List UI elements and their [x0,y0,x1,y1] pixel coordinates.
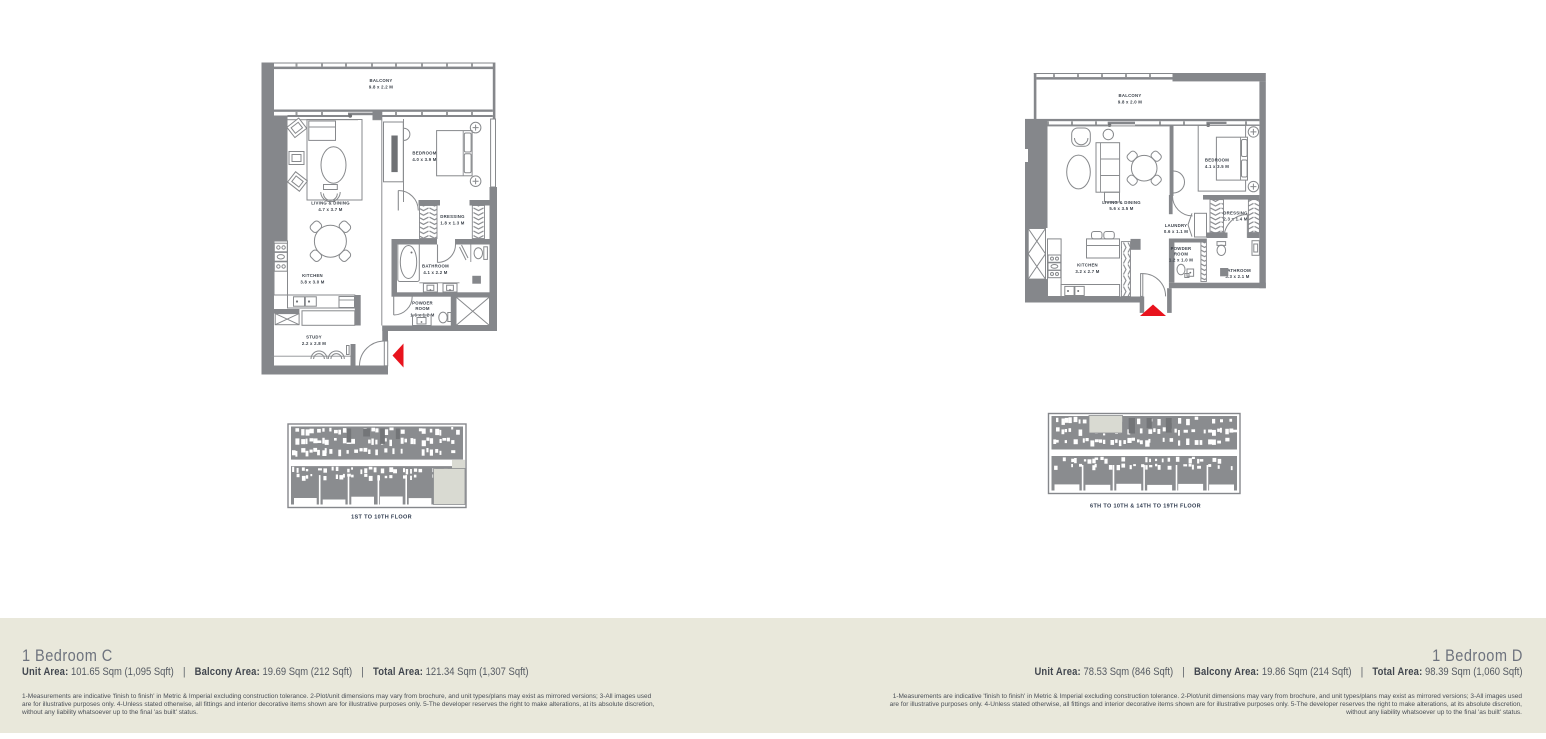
svg-text:3.3 x 2.1 M: 3.3 x 2.1 M [1225,274,1249,279]
svg-text:KITCHEN: KITCHEN [302,273,323,278]
svg-text:BALCONY: BALCONY [370,78,393,83]
svg-text:BATHROOM: BATHROOM [422,264,449,269]
svg-text:POWDER: POWDER [412,301,433,306]
svg-text:0.6 x 1.1 M: 0.6 x 1.1 M [1164,229,1188,234]
svg-text:2.2 x 2.8 M: 2.2 x 2.8 M [302,341,326,346]
svg-text:4.1 x 3.5 M: 4.1 x 3.5 M [1205,164,1229,169]
svg-text:4.1 x 2.2 M: 4.1 x 2.2 M [423,270,447,275]
svg-text:BEDROOM: BEDROOM [1205,158,1229,163]
svg-text:POWDER: POWDER [1171,246,1192,251]
svg-text:DRESSING: DRESSING [440,214,465,219]
svg-text:9.8 x 2.2 M: 9.8 x 2.2 M [369,85,393,90]
svg-text:ROOM: ROOM [415,306,430,311]
svg-text:9.8 x 2.0 M: 9.8 x 2.0 M [1118,100,1142,105]
svg-text:BALCONY: BALCONY [1119,93,1142,98]
svg-text:3.8 x 3.0 M: 3.8 x 3.0 M [300,280,324,285]
svg-text:STUDY: STUDY [306,335,322,340]
svg-text:6TH TO 10TH & 14TH TO 19TH FLO: 6TH TO 10TH & 14TH TO 19TH FLOOR [1090,504,1201,510]
svg-text:3.2 x 2.7 M: 3.2 x 2.7 M [1075,269,1099,274]
svg-text:KITCHEN: KITCHEN [1077,263,1098,268]
svg-text:1.2 x 1.0 M: 1.2 x 1.0 M [1169,258,1193,263]
svg-text:ROOM: ROOM [1174,252,1189,257]
svg-text:LAUNDRY: LAUNDRY [1165,223,1188,228]
svg-text:LIVING & DINING: LIVING & DINING [311,201,350,206]
svg-text:5.6 x 3.5 M: 5.6 x 3.5 M [1109,206,1133,211]
svg-text:BEDROOM: BEDROOM [412,151,436,156]
svg-text:4.0 x 3.9 M: 4.0 x 3.9 M [412,157,436,162]
svg-text:LIVING & DINING: LIVING & DINING [1102,200,1141,205]
svg-text:1.8 x 1.3 M: 1.8 x 1.3 M [440,221,464,226]
svg-text:1ST TO 10TH FLOOR: 1ST TO 10TH FLOOR [351,515,412,521]
svg-text:4.7 x 3.7 M: 4.7 x 3.7 M [318,207,342,212]
